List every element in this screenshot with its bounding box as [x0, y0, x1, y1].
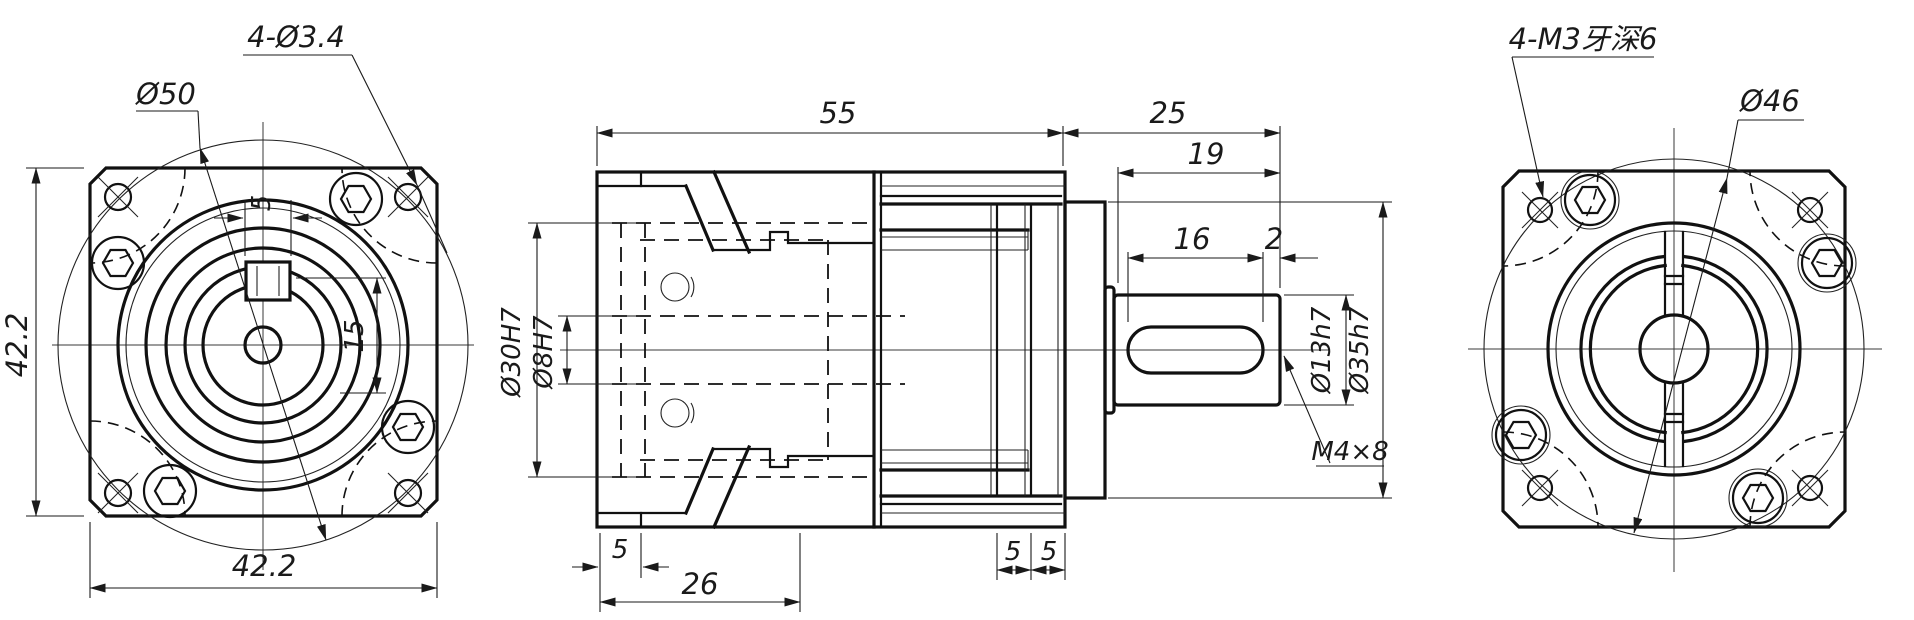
side-shaft-length-label: 19 — [1188, 137, 1225, 171]
front-key-slot — [246, 262, 290, 300]
front-width-label: 42.2 — [232, 549, 297, 583]
front-view: 42.2 42.2 5 15 Ø50 4-Ø3.4 — [0, 20, 474, 598]
front-corner-holes-label: 4-Ø3.4 — [247, 20, 345, 54]
front-height-label: 42.2 — [0, 313, 34, 378]
side-pin-hole-top — [661, 273, 689, 301]
side-flange-thickness-label: 5 — [612, 535, 629, 565]
side-dim-front-section: 26 — [600, 533, 800, 612]
front-pilot-circle-callout: Ø50 — [135, 77, 326, 540]
rear-tapped-holes-label: 4-M3牙深6 — [1509, 22, 1658, 56]
side-keyway-end-gap-label: 2 — [1265, 222, 1283, 256]
side-pilot-diameter-label: Ø35h7 — [1345, 306, 1375, 394]
side-dim-shaft-length: 19 — [1118, 137, 1280, 283]
rear-view: 4-M3牙深6 Ø46 — [1468, 22, 1882, 572]
engineering-drawing: 42.2 42.2 5 15 Ø50 4-Ø3.4 — [0, 0, 1914, 620]
front-corner-holes-callout: 4-Ø3.4 — [243, 20, 447, 253]
side-shaft-diameter-label: Ø13h7 — [1307, 306, 1337, 394]
side-plate-thickness-b-label: 5 — [1041, 537, 1058, 567]
front-dim-key-height: 15 — [296, 278, 386, 393]
side-keyway-length-label: 16 — [1174, 222, 1211, 256]
side-pin-hole-bottom — [661, 399, 689, 427]
side-front-section-label: 26 — [682, 567, 719, 601]
side-gear-bore-label: Ø30H7 — [497, 307, 527, 398]
rear-centerlines — [1468, 128, 1882, 572]
front-centerlines — [52, 122, 474, 570]
side-body-length-label: 55 — [820, 96, 857, 130]
drawing-canvas: 42.2 42.2 5 15 Ø50 4-Ø3.4 — [0, 0, 1914, 620]
side-dim-output-section: 25 — [1063, 96, 1280, 288]
side-dim-flange-thickness: 5 — [572, 533, 669, 612]
rear-bolt-circle-label: Ø46 — [1739, 84, 1800, 118]
front-pilot-circle-label: Ø50 — [135, 77, 196, 111]
side-plate-thickness-a-label: 5 — [1005, 537, 1022, 567]
side-dim-input-bore: Ø8H7 — [529, 315, 640, 390]
side-output-section-label: 25 — [1150, 96, 1187, 130]
side-dim-keyway-length: 16 — [1128, 222, 1263, 322]
front-key-width-label: 5 — [247, 195, 277, 212]
side-tapped-hole-label: M4×8 — [1311, 437, 1388, 467]
side-dim-body-length: 55 — [597, 96, 1063, 166]
side-dim-keyway-end-gap: 2 — [1265, 222, 1318, 258]
side-view: 55 25 19 16 2 Ø13h7 — [497, 96, 1392, 612]
side-input-bore-label: Ø8H7 — [529, 315, 559, 390]
front-dim-height: 42.2 — [0, 168, 84, 516]
side-dim-plate-thicknesses: 5 5 — [997, 533, 1065, 580]
front-key-height-label: 15 — [340, 319, 370, 352]
